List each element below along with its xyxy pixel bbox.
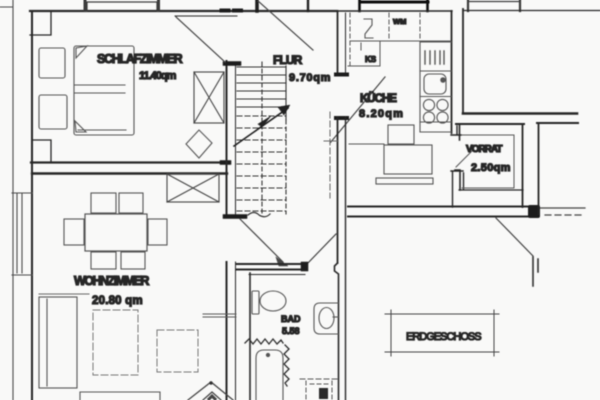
svg-text:8.20qm: 8.20qm <box>359 108 404 120</box>
svg-text:VORRAT: VORRAT <box>466 144 502 155</box>
svg-text:WOHNZIMMER: WOHNZIMMER <box>74 274 149 288</box>
svg-text:11.40qm: 11.40qm <box>139 70 177 82</box>
svg-text:5.58: 5.58 <box>282 326 300 336</box>
svg-text:9.70qm: 9.70qm <box>289 72 331 84</box>
svg-text:20.80 qm: 20.80 qm <box>92 295 143 307</box>
svg-text:FLUR: FLUR <box>273 53 303 67</box>
svg-text:KS: KS <box>365 55 377 64</box>
svg-text:ERDGESCHOSS: ERDGESCHOSS <box>406 331 481 343</box>
svg-text:KÜCHE: KÜCHE <box>360 92 397 105</box>
svg-text:2.50qm: 2.50qm <box>471 162 511 174</box>
svg-text:BAD: BAD <box>281 314 301 324</box>
svg-text:SCHLAFZIMMER: SCHLAFZIMMER <box>97 52 183 66</box>
svg-text:WM: WM <box>393 17 406 26</box>
